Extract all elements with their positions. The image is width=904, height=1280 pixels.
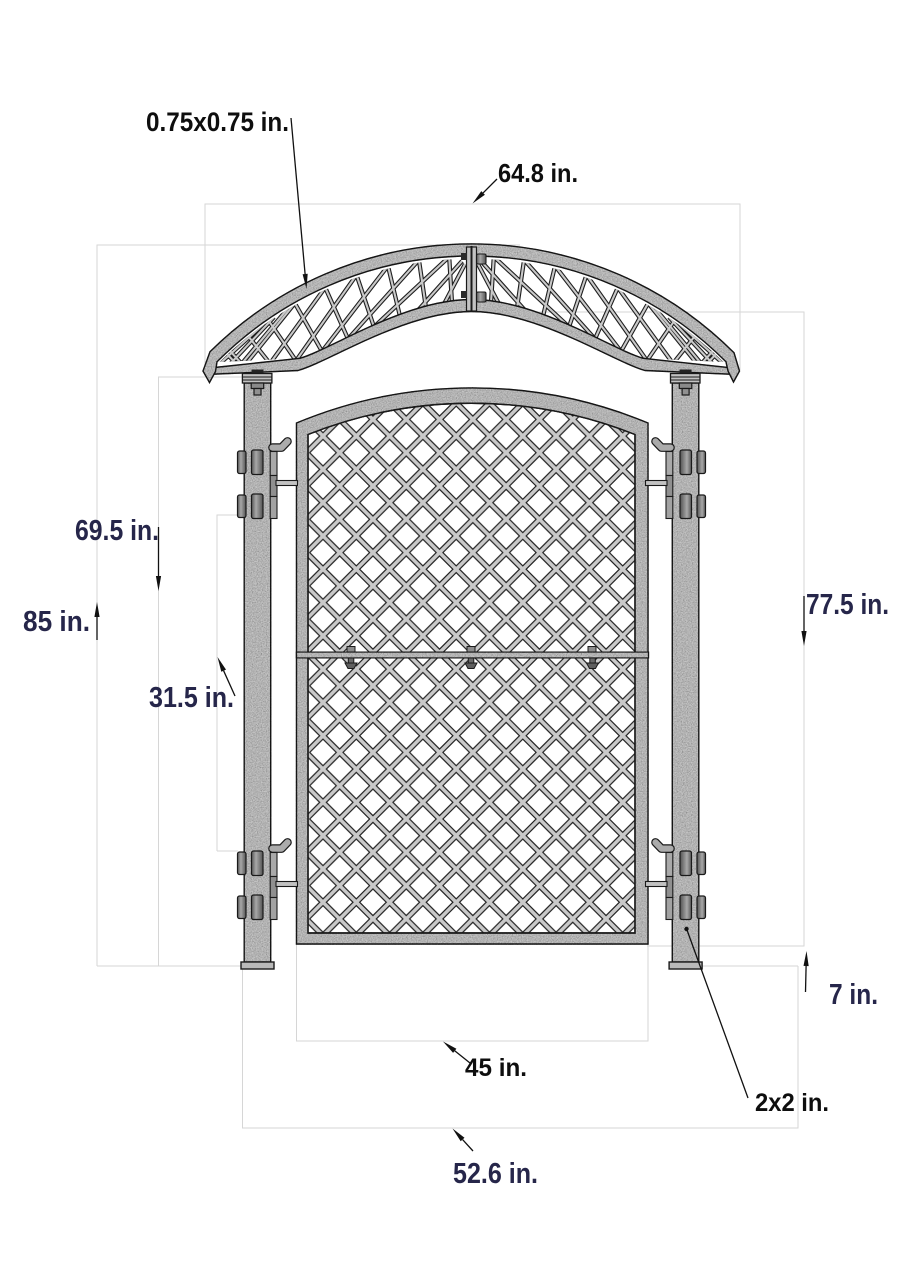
svg-text:69.5 in.: 69.5 in. (75, 515, 159, 547)
svg-text:2x2 in.: 2x2 in. (755, 1089, 829, 1117)
svg-text:45 in.: 45 in. (465, 1054, 527, 1082)
svg-text:64.8 in.: 64.8 in. (498, 158, 578, 188)
svg-text:52.6 in.: 52.6 in. (453, 1158, 538, 1190)
svg-text:7 in.: 7 in. (829, 979, 878, 1011)
svg-text:31.5 in.: 31.5 in. (149, 682, 234, 714)
svg-text:0.75x0.75 in.: 0.75x0.75 in. (146, 107, 289, 137)
svg-text:77.5 in.: 77.5 in. (806, 589, 889, 621)
svg-text:85 in.: 85 in. (23, 606, 90, 638)
